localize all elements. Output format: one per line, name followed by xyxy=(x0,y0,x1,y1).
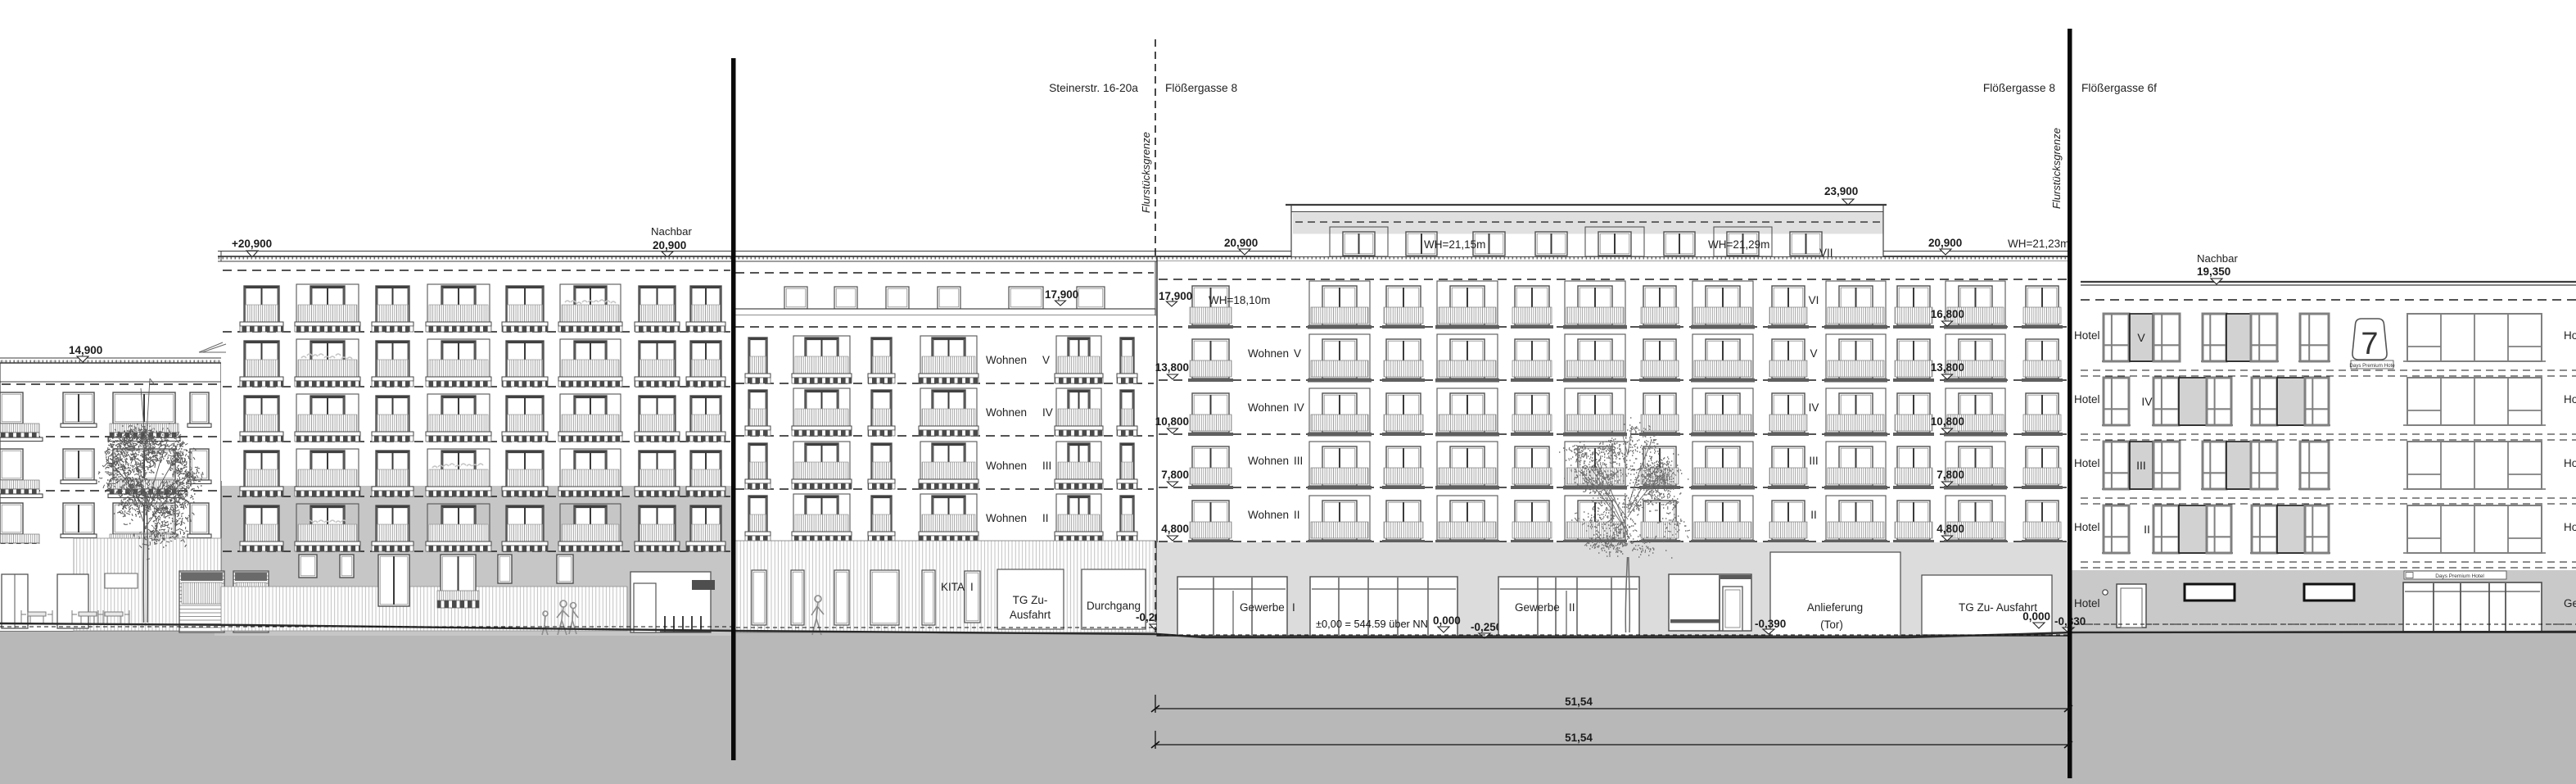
svg-text:13,800: 13,800 xyxy=(1155,361,1189,374)
svg-text:4,800: 4,800 xyxy=(1161,523,1189,535)
svg-text:V: V xyxy=(1810,347,1817,360)
svg-text:Hotel: Hotel xyxy=(2564,393,2576,406)
svg-text:Hotel: Hotel xyxy=(2564,457,2576,469)
svg-text:V: V xyxy=(2137,331,2145,344)
svg-text:I: I xyxy=(1292,601,1295,614)
svg-text:WH=21,29m: WH=21,29m xyxy=(1708,238,1769,251)
svg-text:Ausfahrt: Ausfahrt xyxy=(1010,609,1051,621)
svg-text:(Tor): (Tor) xyxy=(1820,619,1843,631)
svg-text:16,800: 16,800 xyxy=(1931,308,1964,320)
svg-text:TG Zu-: TG Zu- xyxy=(1013,594,1048,606)
svg-text:Hotel: Hotel xyxy=(2564,521,2576,533)
svg-text:Wohnen: Wohnen xyxy=(986,460,1027,472)
svg-text:Anlieferung: Anlieferung xyxy=(1807,601,1863,614)
svg-text:Wohnen: Wohnen xyxy=(986,512,1027,524)
svg-text:WH=21,15m: WH=21,15m xyxy=(1424,238,1485,251)
svg-text:10,800: 10,800 xyxy=(1931,415,1964,428)
svg-text:II: II xyxy=(1294,509,1300,521)
svg-text:III: III xyxy=(1294,455,1303,467)
svg-text:-0,250: -0,250 xyxy=(1471,621,1502,633)
svg-text:7,800: 7,800 xyxy=(1937,469,1964,481)
svg-text:Hotel: Hotel xyxy=(2564,329,2576,342)
svg-text:23,900: 23,900 xyxy=(1824,185,1858,197)
svg-text:51,54: 51,54 xyxy=(1565,732,1593,744)
svg-text:10,800: 10,800 xyxy=(1155,415,1189,428)
svg-text:Hotel: Hotel xyxy=(2074,521,2100,533)
svg-text:Hotel: Hotel xyxy=(2074,597,2100,610)
svg-text:III: III xyxy=(1809,455,1818,467)
svg-text:7,800: 7,800 xyxy=(1161,469,1189,481)
svg-text:17,900: 17,900 xyxy=(1159,290,1192,302)
svg-text:Wohnen: Wohnen xyxy=(986,406,1027,419)
svg-text:13,800: 13,800 xyxy=(1931,361,1964,374)
svg-text:14,900: 14,900 xyxy=(69,344,102,356)
svg-text:19,350: 19,350 xyxy=(2197,265,2230,278)
svg-text:0,000: 0,000 xyxy=(1433,614,1461,627)
svg-text:17,900: 17,900 xyxy=(1045,288,1078,301)
svg-text:IV: IV xyxy=(1809,401,1819,414)
svg-text:I: I xyxy=(970,581,974,593)
svg-text:Days Premium Hote: Days Premium Hote xyxy=(2349,363,2395,369)
svg-text:IV: IV xyxy=(1294,401,1304,414)
svg-text:±0,00 = 544.59 über NN: ±0,00 = 544.59 über NN xyxy=(1316,618,1428,630)
svg-text:Wohnen: Wohnen xyxy=(1248,509,1289,521)
svg-text:Wohnen: Wohnen xyxy=(986,354,1027,366)
svg-text:Flößergasse 8: Flößergasse 8 xyxy=(1165,82,1238,94)
svg-text:II: II xyxy=(2144,523,2150,536)
svg-text:III: III xyxy=(2136,459,2146,472)
svg-text:Hotel: Hotel xyxy=(2074,457,2100,469)
svg-text:Wohnen: Wohnen xyxy=(1248,401,1289,414)
svg-text:KITA: KITA xyxy=(941,581,965,593)
svg-text:Days Premium Hotel: Days Premium Hotel xyxy=(2435,573,2484,579)
svg-text:V: V xyxy=(1294,347,1301,360)
svg-text:II: II xyxy=(1810,509,1817,521)
svg-text:Gewerbe: Gewerbe xyxy=(1240,601,1285,614)
svg-text:+20,900: +20,900 xyxy=(232,238,272,250)
svg-text:VI: VI xyxy=(1809,294,1819,306)
svg-text:IV: IV xyxy=(1042,406,1053,419)
svg-text:Flurstücksgrenze: Flurstücksgrenze xyxy=(2050,128,2063,209)
svg-text:4,800: 4,800 xyxy=(1937,523,1964,535)
svg-text:Hotel: Hotel xyxy=(2074,329,2100,342)
svg-text:IV: IV xyxy=(2141,395,2153,408)
svg-text:V: V xyxy=(1042,354,1050,366)
svg-text:Flurstücksgrenze: Flurstücksgrenze xyxy=(1140,132,1152,213)
svg-text:WH=18,10m: WH=18,10m xyxy=(1209,294,1270,306)
svg-text:WH=21,23m: WH=21,23m xyxy=(2008,238,2069,250)
svg-text:Steinerstr. 16-20a: Steinerstr. 16-20a xyxy=(1049,82,1138,94)
svg-text:II: II xyxy=(1569,601,1575,614)
svg-text:-0,390: -0,390 xyxy=(1755,618,1786,630)
svg-text:Nachbar: Nachbar xyxy=(651,225,692,238)
svg-text:51,54: 51,54 xyxy=(1565,696,1593,708)
svg-text:Gewerbe: Gewerbe xyxy=(1515,601,1560,614)
svg-text:Wohnen: Wohnen xyxy=(1248,347,1289,360)
svg-text:II: II xyxy=(1042,512,1049,524)
svg-text:III: III xyxy=(1042,460,1051,472)
svg-text:20,900: 20,900 xyxy=(1928,237,1962,249)
svg-text:20,900: 20,900 xyxy=(653,239,686,252)
svg-text:7: 7 xyxy=(2361,327,2378,361)
svg-text:20,900: 20,900 xyxy=(1224,237,1258,249)
svg-text:Durchgang: Durchgang xyxy=(1087,600,1141,612)
svg-text:Flößergasse 8: Flößergasse 8 xyxy=(1983,82,2056,94)
svg-text:Flößergasse 6f: Flößergasse 6f xyxy=(2081,82,2157,94)
svg-text:Wohnen: Wohnen xyxy=(1248,455,1289,467)
svg-text:Gewerbe: Gewerbe xyxy=(2564,597,2576,610)
svg-text:Hotel: Hotel xyxy=(2074,393,2100,406)
svg-text:0,000: 0,000 xyxy=(2022,610,2050,623)
svg-text:VII: VII xyxy=(1819,247,1833,259)
svg-text:Nachbar: Nachbar xyxy=(2197,252,2238,265)
